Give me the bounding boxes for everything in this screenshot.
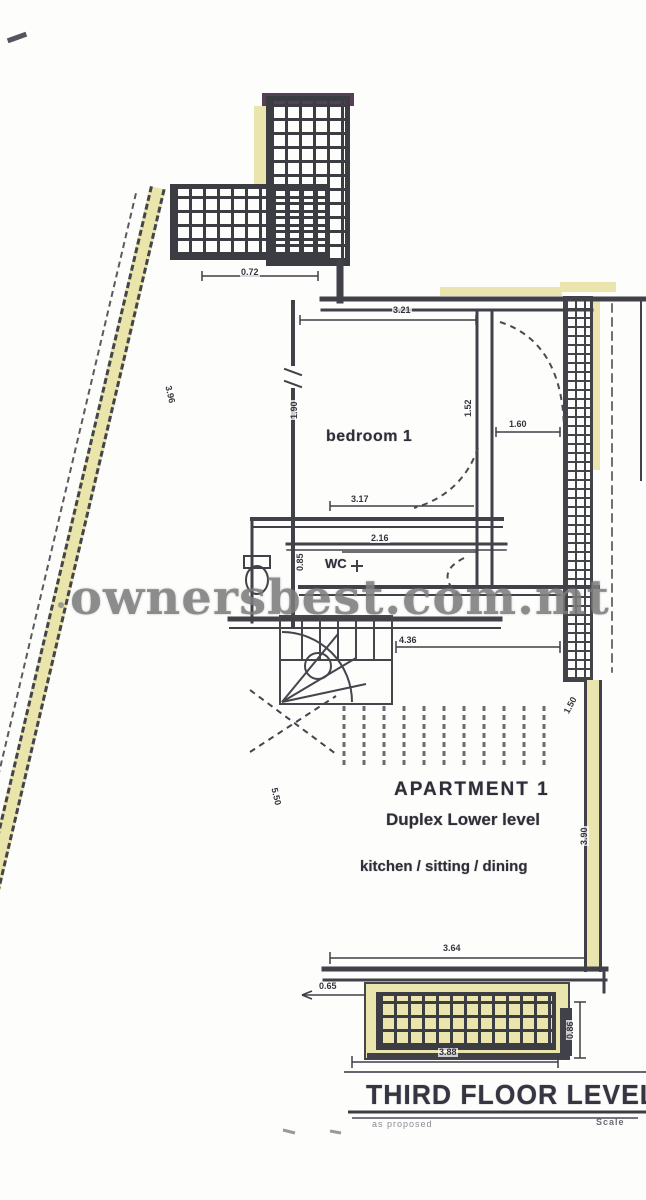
drawing-title: THIRD FLOOR LEVEL [366, 1079, 646, 1111]
staircase [250, 616, 392, 754]
door-swing-arcs [414, 322, 564, 598]
dim-balcony-bottom: 3.88 [438, 1048, 458, 1057]
dim-balcony-right: 0.86 [566, 1020, 575, 1040]
dim-bedroom-right: 1.52 [464, 398, 473, 418]
walls [10, 35, 644, 1056]
dim-terrace-bottom: 0.72 [240, 268, 260, 277]
room-label-wc: WC [325, 556, 347, 571]
dim-right-lower: 3.90 [580, 826, 589, 846]
dim-bedroom-left: 1.90 [290, 400, 299, 420]
dim-bedroom-top: 3.21 [392, 306, 412, 315]
dim-bedroom-bottom: 3.17 [350, 495, 370, 504]
apartment-label: APARTMENT 1 [394, 779, 550, 801]
room-label-bedroom: bedroom 1 [326, 428, 412, 446]
floor-plan-canvas: bedroom 1 WC APARTMENT 1 Duplex Lower le… [0, 0, 646, 1200]
dim-room-bottom: 3.64 [442, 944, 462, 953]
watermark: ownersbest.com.mt [70, 570, 610, 626]
dim-balcony-left: 0.65 [318, 982, 338, 991]
watermark-dot [58, 602, 64, 608]
dimension-lines [202, 271, 586, 1068]
drawing-subtitle: as proposed [372, 1119, 433, 1129]
scale-label: Scale [596, 1117, 625, 1127]
stair-treads-dashed [344, 706, 544, 766]
dim-hall-right: 1.60 [508, 420, 528, 429]
dim-stair-width: 4.36 [398, 636, 418, 645]
dim-wc-top: 2.16 [370, 534, 390, 543]
room-label-kitchen: kitchen / sitting / dining [360, 858, 528, 875]
apartment-sublabel: Duplex Lower level [386, 810, 540, 830]
